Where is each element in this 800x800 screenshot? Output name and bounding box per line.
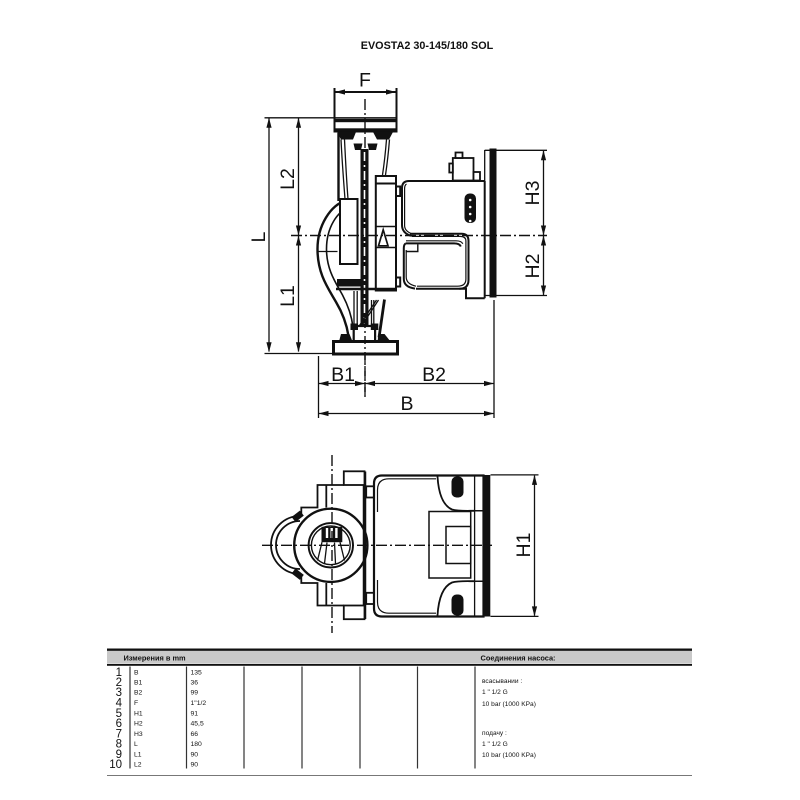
svg-text:L2: L2 (277, 168, 299, 190)
svg-text:180: 180 (191, 741, 203, 748)
svg-text:F: F (359, 70, 371, 92)
svg-text:1 " 1/2 G: 1 " 1/2 G (482, 741, 508, 748)
svg-text:H1: H1 (134, 710, 143, 717)
svg-text:B1: B1 (134, 680, 143, 687)
svg-text:EVOSTA2 30-145/180 SOL: EVOSTA2 30-145/180 SOL (361, 40, 494, 52)
svg-text:подачу :: подачу : (482, 730, 507, 737)
svg-text:Соединения насоса:: Соединения насоса: (481, 654, 556, 663)
svg-text:L1: L1 (277, 285, 299, 307)
svg-text:99: 99 (191, 690, 199, 697)
svg-text:F: F (134, 700, 138, 707)
svg-text:135: 135 (191, 669, 203, 676)
svg-text:L2: L2 (134, 762, 142, 769)
svg-text:H1: H1 (513, 533, 535, 558)
svg-text:B1: B1 (331, 364, 355, 386)
svg-text:H2: H2 (522, 254, 544, 279)
svg-text:L: L (134, 741, 138, 748)
svg-text:H2: H2 (134, 721, 143, 728)
svg-text:90: 90 (191, 762, 199, 769)
svg-text:всасывании :: всасывании : (482, 678, 522, 685)
svg-text:10: 10 (109, 759, 122, 771)
svg-text:H3: H3 (522, 181, 544, 206)
svg-text:Измерения в mm: Измерения в mm (124, 654, 187, 663)
svg-text:H3: H3 (134, 731, 143, 738)
svg-text:L: L (248, 231, 270, 242)
svg-text:10 bar (1000 KPa): 10 bar (1000 KPa) (482, 701, 536, 708)
svg-text:36: 36 (191, 680, 199, 687)
svg-text:L1: L1 (134, 751, 142, 758)
svg-text:90: 90 (191, 751, 199, 758)
svg-text:1"1/2: 1"1/2 (191, 700, 207, 707)
svg-text:1 " 1/2 G: 1 " 1/2 G (482, 689, 508, 696)
svg-text:66: 66 (191, 731, 199, 738)
svg-text:B: B (134, 669, 139, 676)
svg-text:10 bar (1000 KPa): 10 bar (1000 KPa) (482, 752, 536, 759)
svg-text:B2: B2 (422, 364, 446, 386)
svg-text:B: B (400, 393, 413, 415)
svg-text:B2: B2 (134, 690, 143, 697)
svg-text:91: 91 (191, 710, 199, 717)
svg-text:45,5: 45,5 (191, 721, 204, 728)
